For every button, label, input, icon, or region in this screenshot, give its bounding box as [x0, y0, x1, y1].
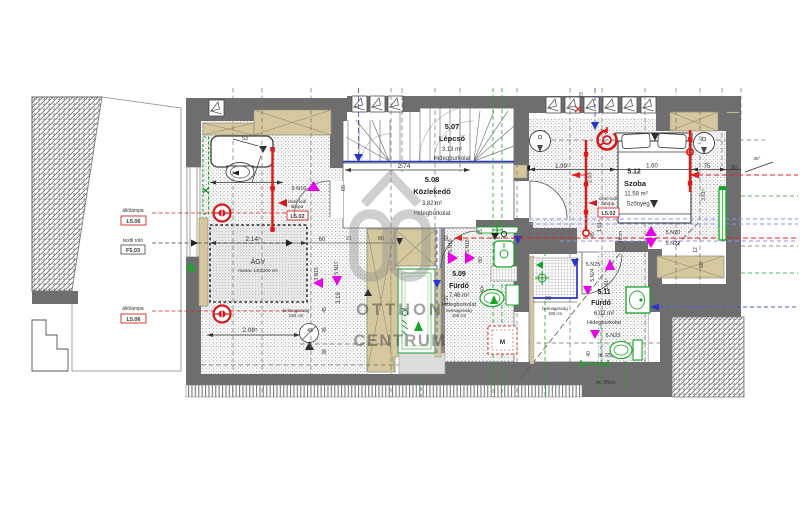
svg-text:82: 82 — [444, 235, 450, 241]
svg-text:5.12: 5.12 — [627, 169, 641, 176]
svg-text:45: 45 — [322, 307, 328, 313]
svg-text:75: 75 — [704, 164, 711, 170]
svg-text:L5.02: L5.02 — [601, 211, 615, 217]
svg-text:16cm: 16cm — [618, 231, 624, 243]
svg-text:7,46 m²: 7,46 m² — [449, 293, 469, 299]
svg-text:5.N18: 5.N18 — [465, 239, 471, 253]
svg-text:L5.02: L5.02 — [290, 214, 304, 220]
svg-text:Lépcső: Lépcső — [439, 134, 466, 143]
svg-text:matrac 140x200 cm: matrac 140x200 cm — [238, 268, 278, 273]
svg-text:L5.06: L5.06 — [126, 219, 140, 225]
svg-text:textil roló: textil roló — [123, 238, 143, 244]
svg-text:állólámpa: állólámpa — [122, 306, 144, 312]
svg-text:5.N20: 5.N20 — [666, 230, 681, 236]
svg-text:40: 40 — [586, 351, 592, 357]
svg-text:6,02 m²: 6,02 m² — [594, 311, 614, 317]
svg-text:CENTRUM: CENTRUM — [354, 332, 447, 350]
svg-text:5.N24: 5.N24 — [590, 268, 596, 282]
svg-text:45: 45 — [590, 232, 596, 238]
svg-text:5 N17: 5 N17 — [334, 261, 340, 275]
svg-text:Fürdő: Fürdő — [591, 300, 611, 307]
svg-text:Hidegburkolat: Hidegburkolat — [433, 156, 470, 162]
svg-text:Fürdő: Fürdő — [449, 283, 469, 290]
svg-text:2.03¹: 2.03¹ — [588, 171, 594, 183]
svg-text:5.N25: 5.N25 — [586, 262, 601, 268]
svg-text:Szoba: Szoba — [624, 179, 647, 188]
svg-text:190 cm: 190 cm — [548, 311, 563, 316]
svg-text:3,13 m²: 3,13 m² — [442, 147, 462, 153]
svg-text:5.N23: 5.N23 — [606, 333, 621, 339]
svg-text:M: M — [500, 339, 505, 346]
svg-text:80: 80 — [478, 257, 484, 263]
svg-text:3.19: 3.19 — [336, 292, 342, 304]
svg-text:F5.03: F5.03 — [126, 248, 140, 254]
svg-text:Szőnyeg: Szőnyeg — [626, 202, 649, 208]
svg-text:2.08⁵: 2.08⁵ — [242, 327, 258, 334]
svg-text:5 N16: 5 N16 — [292, 186, 307, 192]
svg-text:5.09: 5.09 — [452, 271, 466, 278]
svg-text:5.07: 5.07 — [445, 122, 460, 131]
svg-text:65: 65 — [341, 185, 347, 191]
svg-text:3.61⁵: 3.61⁵ — [701, 189, 707, 201]
svg-text:5.08: 5.08 — [425, 175, 440, 184]
svg-text:Hidegburkolat: Hidegburkolat — [587, 320, 621, 326]
svg-text:36°: 36° — [754, 156, 761, 161]
svg-text:60: 60 — [319, 237, 326, 243]
svg-text:lámpa: lámpa — [602, 201, 615, 206]
svg-text:állólámpa: állólámpa — [122, 208, 144, 214]
svg-text:m. 65cm: m. 65cm — [596, 380, 615, 386]
svg-text:90: 90 — [545, 296, 551, 302]
svg-text:45: 45 — [307, 328, 313, 334]
svg-text:1.60: 1.60 — [646, 164, 658, 170]
svg-text:1.41⁵: 1.41⁵ — [604, 278, 610, 290]
svg-text:11.58 m²: 11.58 m² — [624, 192, 647, 198]
svg-text:1.61⁵: 1.61⁵ — [597, 220, 603, 232]
svg-text:190 cm: 190 cm — [452, 313, 467, 318]
svg-text:190 cm: 190 cm — [289, 313, 304, 318]
svg-text:60: 60 — [699, 262, 705, 268]
svg-text:25: 25 — [478, 229, 484, 235]
svg-text:23: 23 — [579, 92, 585, 98]
svg-text:45: 45 — [322, 327, 328, 333]
svg-text:OTTHON: OTTHON — [356, 301, 444, 319]
svg-text:3 N15: 3 N15 — [314, 267, 320, 281]
svg-text:2.14⁵: 2.14⁵ — [245, 236, 261, 243]
svg-text:2.74: 2.74 — [398, 163, 411, 170]
svg-text:30: 30 — [731, 165, 737, 171]
svg-text:3,82 m²: 3,82 m² — [422, 201, 442, 207]
svg-text:lámpa: lámpa — [291, 204, 304, 209]
svg-text:12: 12 — [693, 247, 699, 253]
svg-text:40⁵: 40⁵ — [480, 285, 486, 293]
svg-text:1.99¹: 1.99¹ — [555, 164, 569, 170]
svg-text:53: 53 — [242, 136, 248, 142]
svg-text:ÁGY: ÁGY — [251, 257, 266, 266]
svg-text:1.97: 1.97 — [444, 295, 450, 305]
svg-text:5.N21: 5.N21 — [666, 241, 681, 247]
svg-text:L5.06: L5.06 — [126, 317, 140, 323]
svg-text:38: 38 — [322, 349, 328, 355]
svg-text:Közlekedő: Közlekedő — [413, 187, 451, 196]
